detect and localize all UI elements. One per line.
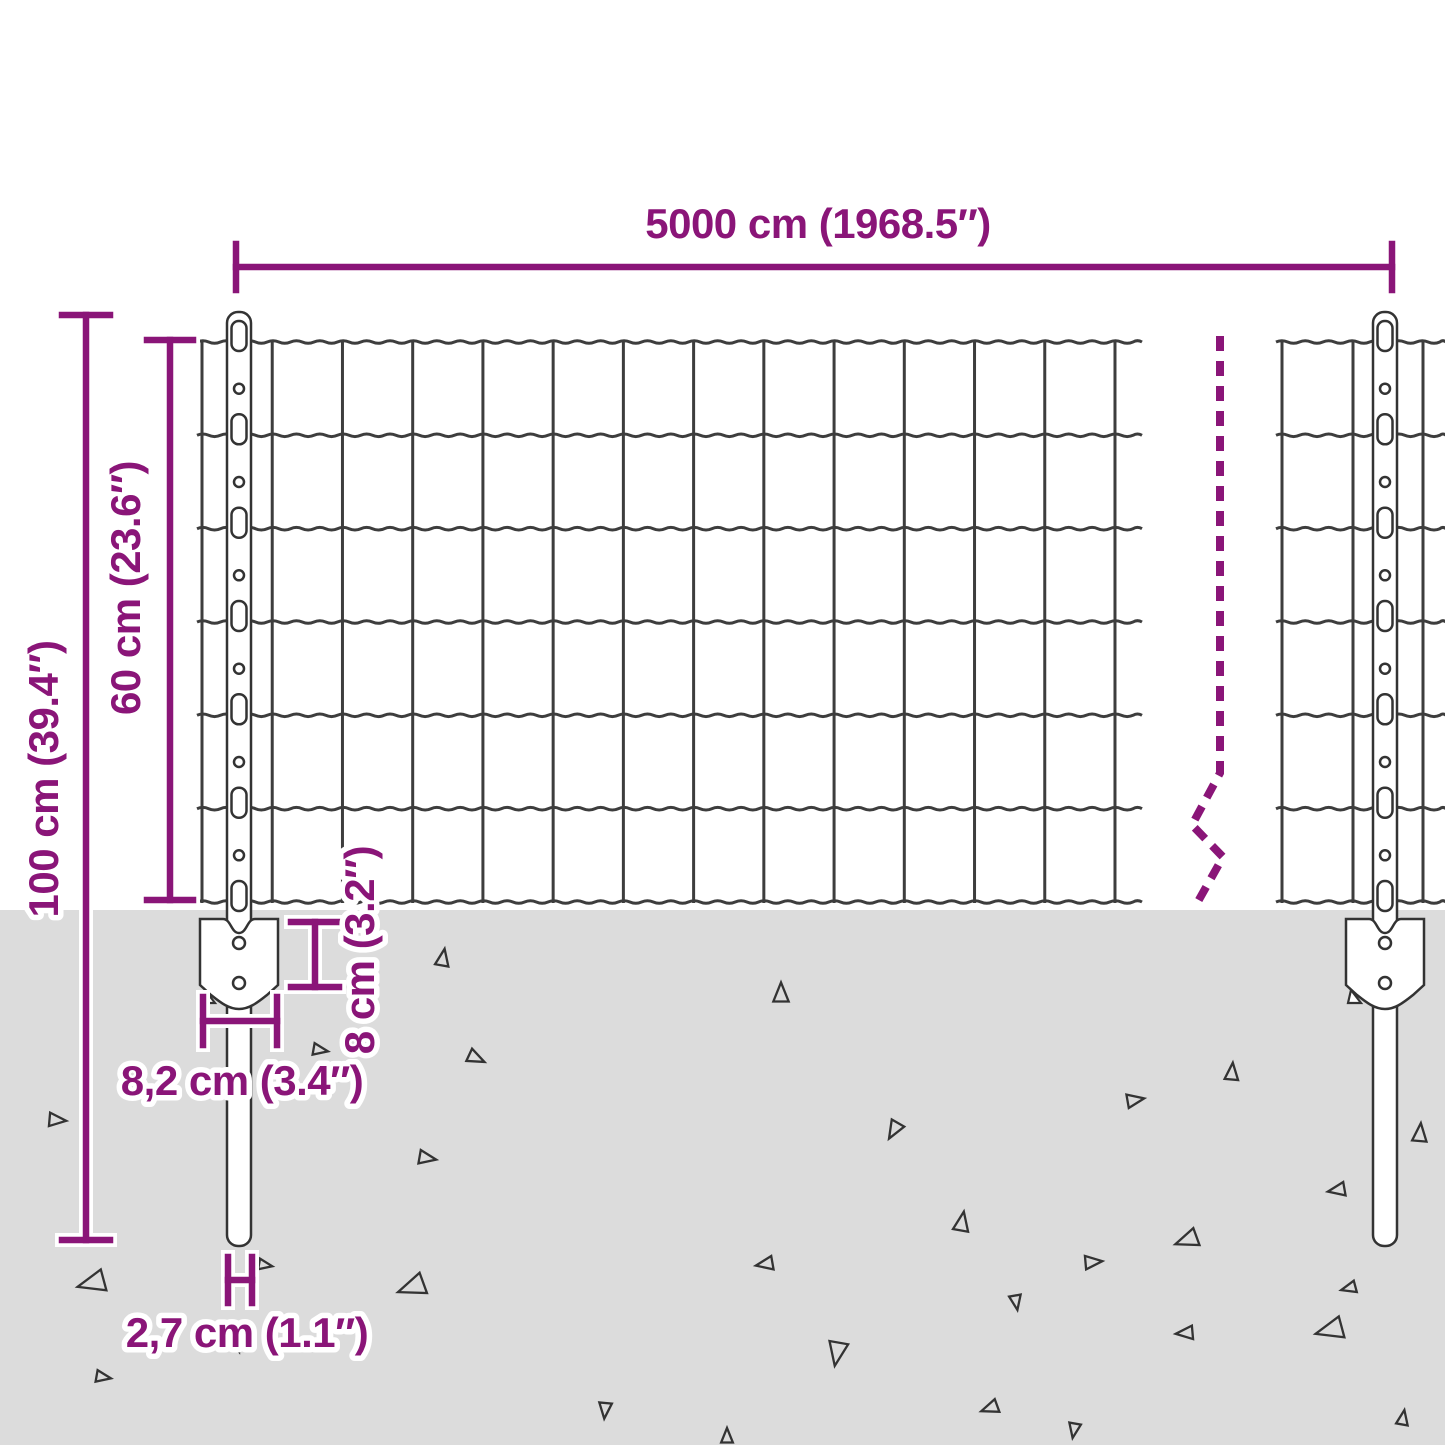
post-hook (1378, 508, 1393, 538)
post-hook (1378, 788, 1393, 818)
post-hook (1378, 881, 1393, 911)
post-hook (1378, 321, 1393, 351)
fence-post (1373, 312, 1397, 1246)
post-hole (1380, 850, 1390, 860)
diagram-canvas: 5000 cm (1968.5″) 100 cm (39.4″) 60 cm (… (0, 0, 1445, 1445)
post-hole (1380, 384, 1390, 394)
fence-dimension-diagram: 5000 cm (1968.5″) 100 cm (39.4″) 60 cm (… (0, 0, 1445, 1445)
bracket-hole (1379, 977, 1391, 989)
post-hook (232, 601, 247, 631)
post-hole (234, 384, 244, 394)
post-hole (1380, 757, 1390, 767)
post-hook (232, 321, 247, 351)
fence-post (227, 312, 251, 1246)
post-hole (234, 664, 244, 674)
post-hook (1378, 694, 1393, 724)
post-hook (1378, 601, 1393, 631)
post-hook (232, 694, 247, 724)
post-hole (234, 757, 244, 767)
post-hole (1380, 477, 1390, 487)
post-hook (232, 414, 247, 444)
post-diameter-label: 2,7 cm (1.1″) (126, 1309, 368, 1356)
post-hole (234, 477, 244, 487)
post-hole (1380, 570, 1390, 580)
post-anchor-bracket (1346, 919, 1424, 1009)
post-hole (234, 570, 244, 580)
post-hook (1378, 414, 1393, 444)
post-anchor-bracket (200, 919, 278, 1009)
post-hole (234, 850, 244, 860)
bracket-hole (233, 937, 245, 949)
post-hook (232, 881, 247, 911)
bracket-width-label: 8,2 cm (3.4″) (121, 1057, 363, 1104)
bracket-depth-label: 8 cm (3.2″) (336, 846, 383, 1054)
mesh-height-label: 60 cm (23.6″) (102, 461, 149, 715)
post-height-label: 100 cm (39.4″) (20, 641, 67, 918)
bracket-hole (233, 977, 245, 989)
post-hole (1380, 664, 1390, 674)
post-hook (232, 508, 247, 538)
bracket-hole (1379, 937, 1391, 949)
total-width-label: 5000 cm (1968.5″) (645, 200, 991, 247)
post-hook (232, 788, 247, 818)
